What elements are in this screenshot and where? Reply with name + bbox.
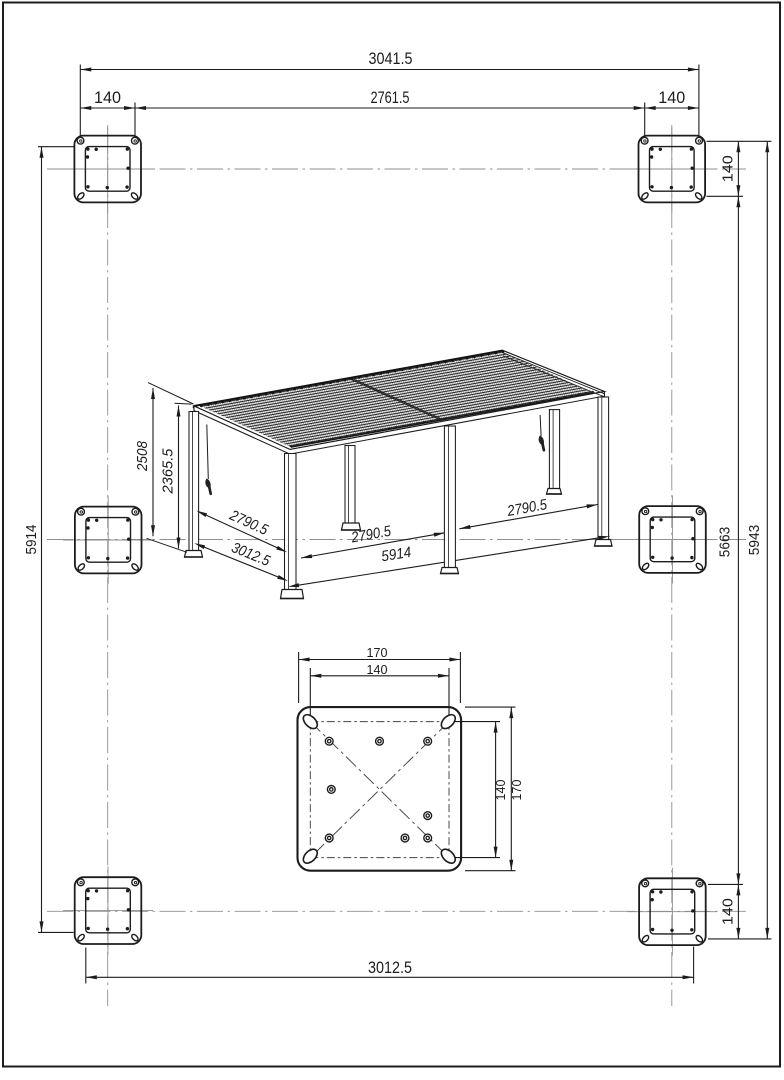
svg-text:3041.5: 3041.5 [369, 50, 413, 68]
svg-text:140: 140 [367, 662, 388, 677]
svg-text:3012.5: 3012.5 [368, 959, 412, 977]
svg-text:140: 140 [719, 155, 736, 182]
svg-text:2508: 2508 [134, 440, 151, 471]
svg-text:140: 140 [493, 780, 508, 801]
svg-text:5663: 5663 [717, 527, 734, 558]
svg-text:2365.5: 2365.5 [160, 448, 177, 495]
svg-text:170: 170 [367, 645, 388, 660]
svg-text:140: 140 [94, 89, 121, 107]
svg-text:140: 140 [719, 898, 736, 925]
svg-text:5943: 5943 [746, 525, 763, 556]
svg-text:2761.5: 2761.5 [371, 89, 410, 107]
svg-text:5914: 5914 [23, 525, 40, 555]
svg-text:170: 170 [509, 780, 524, 801]
svg-text:140: 140 [658, 89, 685, 107]
